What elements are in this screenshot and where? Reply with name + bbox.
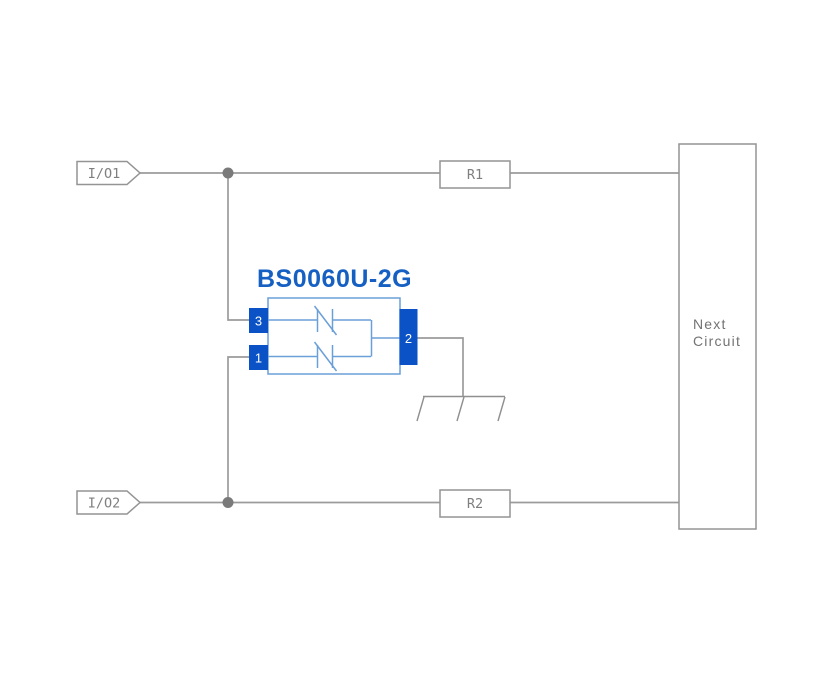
io-port-io1: I/O1	[77, 162, 140, 185]
resistor-r2: R2	[440, 490, 510, 517]
io1-label: I/O1	[88, 166, 121, 182]
junction-dot	[223, 497, 234, 508]
pin-3-number: 3	[255, 314, 262, 329]
wire-junction2-to-pin1	[228, 357, 249, 503]
pin-2: 2	[400, 309, 418, 365]
ground-slash-1	[417, 397, 424, 421]
pin-1-number: 1	[255, 351, 262, 366]
wire-junction1-to-pin3	[228, 173, 249, 320]
r2-label: R2	[467, 496, 483, 512]
junction-dot	[223, 168, 234, 179]
ground-slash-3	[498, 397, 505, 421]
circuit-diagram: I/O1 I/O2 R1 R2 Next Circuit BS0060U-2G	[0, 0, 832, 675]
r1-label: R1	[467, 167, 483, 183]
circuit-schematic-page: I/O1 I/O2 R1 R2 Next Circuit BS0060U-2G	[0, 0, 832, 675]
pin-3: 3	[249, 308, 268, 333]
pin-1: 1	[249, 345, 268, 370]
wire-pin2-to-ground	[417, 338, 463, 396]
resistor-r1: R1	[440, 161, 510, 188]
io-port-io2: I/O2	[77, 491, 140, 514]
next-circuit-label-line1: Next	[693, 316, 727, 332]
next-circuit-label-line2: Circuit	[693, 333, 741, 349]
io2-label: I/O2	[88, 496, 121, 512]
pin-2-number: 2	[405, 331, 412, 346]
component-body	[268, 298, 400, 374]
ground-slash-2	[457, 397, 464, 421]
next-circuit-block: Next Circuit	[679, 144, 756, 529]
component-title: BS0060U-2G	[257, 265, 412, 293]
esd-protection-component: BS0060U-2G	[249, 265, 418, 374]
chassis-ground-icon	[417, 397, 505, 422]
